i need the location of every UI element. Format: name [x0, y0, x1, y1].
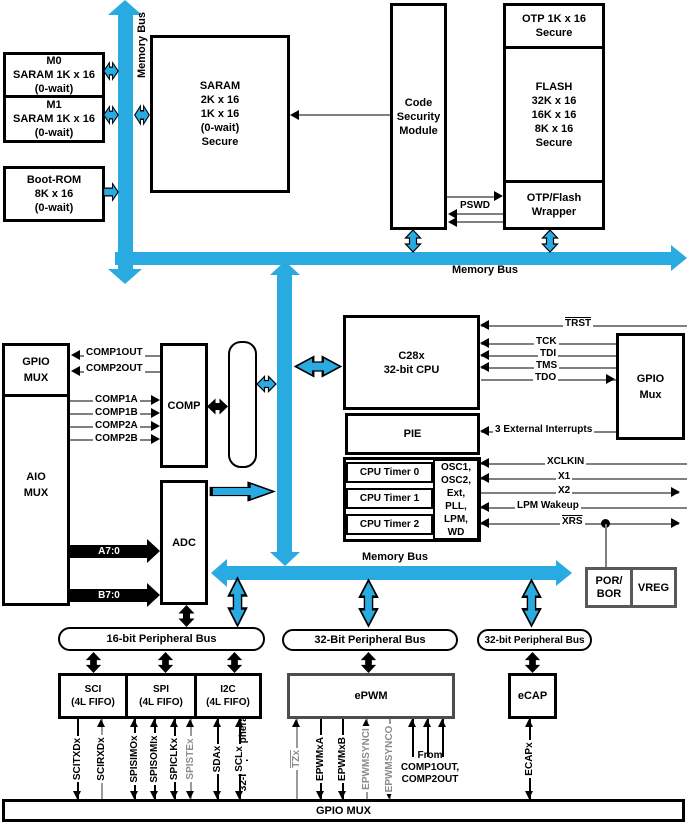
x2-label: X2	[556, 485, 572, 497]
m1-saram-block: M1 SARAM 1K x 16 (0-wait)	[3, 95, 105, 143]
x2-line	[481, 492, 679, 494]
pswd-return-line	[451, 221, 503, 223]
memory-bus-vertical-label: Memory Bus	[136, 12, 148, 78]
double-arrow	[541, 229, 559, 253]
comp-block: COMP	[160, 343, 208, 468]
peripheral-bus-32-epwm: 32-Bit Peripheral Bus	[282, 629, 458, 651]
arrowhead	[606, 374, 615, 384]
memory-bus-vertical	[118, 14, 133, 270]
trst-label: TRST	[563, 318, 593, 330]
arrowhead	[671, 487, 680, 497]
ecapx-label: ECAPx	[524, 721, 536, 797]
saram-block: SARAM 2K x 16 1K x 16 (0-wait) Secure	[150, 35, 290, 193]
bus-connector-arrow	[521, 578, 542, 628]
xrs-label: XRS	[560, 516, 585, 528]
csm-saram-line	[292, 114, 390, 116]
arrowhead	[408, 719, 416, 727]
scitxdx-label: SCITXDx	[72, 721, 84, 797]
arrowhead	[480, 426, 489, 436]
sci-block: SCI (4L FIFO)	[58, 673, 128, 719]
memory-bus-top	[115, 252, 671, 265]
peripheral-bus-32-vertical: 32-bit peripheral bus	[228, 341, 257, 468]
arrowhead	[151, 408, 160, 418]
xclkin-label: XCLKIN	[545, 456, 586, 468]
tdo-label: TDO	[533, 372, 558, 384]
clocks-block: OSC1, OSC2, Ext, PLL, LPM, WD	[433, 459, 479, 540]
arrowhead	[671, 518, 680, 528]
double-arrow	[256, 375, 277, 393]
pie-block: PIE	[345, 413, 480, 455]
arrowhead	[448, 217, 457, 227]
arrowhead	[480, 502, 489, 512]
arrowhead	[151, 395, 160, 405]
memory-bus-central-vertical	[277, 275, 292, 553]
arrowhead	[480, 350, 489, 360]
gpio-mux-right-block: GPIO Mux	[616, 333, 685, 440]
cpu-timer2-block: CPU Timer 2	[346, 514, 433, 535]
double-arrow	[157, 652, 174, 673]
cpu-timer1-block: CPU Timer 1	[346, 488, 433, 509]
double-arrow	[360, 652, 377, 673]
epwm-block: ePWM	[287, 673, 455, 719]
spiclkx-label: SPICLKx	[169, 721, 181, 797]
arrowhead	[480, 458, 489, 468]
comp2out-label: COMP2OUT	[84, 363, 145, 375]
comp2b-label: COMP2B	[93, 433, 140, 445]
spistex-label: SPISTEx	[185, 721, 197, 797]
epwmsynci-label: EPWMSYNCI	[361, 721, 373, 797]
peripheral-bus-32-ecap: 32-bit Peripheral Bus	[477, 629, 592, 651]
arrowhead	[108, 269, 142, 284]
arrowhead	[556, 560, 572, 586]
boot-rom-block: Boot-ROM 8K x 16 (0-wait)	[3, 166, 105, 222]
arrowhead	[480, 362, 489, 372]
block-diagram: Memory Bus Memory Bus Memory Bus M0 SARA…	[0, 0, 687, 824]
arrowhead	[147, 539, 160, 563]
gpio-aio-mux-block: GPIO MUX AIO MUX	[2, 343, 70, 606]
sclx-label: SCLx	[234, 721, 246, 797]
arrowhead	[290, 110, 299, 120]
double-arrow	[103, 61, 119, 81]
x1-label: X1	[556, 471, 572, 483]
cpu-block: C28x 32-bit CPU	[343, 315, 480, 410]
lpm-wakeup-line	[481, 507, 687, 509]
double-arrow	[134, 104, 150, 126]
flash-block: FLASH 32K x 16 16K x 16 8K x 16 Secure	[503, 46, 605, 183]
comp1b-label: COMP1B	[93, 407, 140, 419]
arrowhead	[438, 719, 446, 727]
comp1a-label: COMP1A	[93, 394, 140, 406]
code-security-module-block: Code Security Module	[390, 3, 447, 230]
arrowhead	[270, 261, 300, 275]
arrowhead	[480, 320, 489, 330]
comp1out-label: COMP1OUT	[84, 347, 145, 359]
arrowhead	[480, 338, 489, 348]
tzx-label: TZx	[291, 721, 303, 797]
otp-block: OTP 1K x 16 Secure	[503, 3, 605, 49]
tms-label: TMS	[534, 360, 559, 372]
arrowhead	[494, 191, 503, 201]
x1-line	[481, 478, 687, 480]
arrowhead	[270, 552, 300, 566]
arrowhead	[71, 366, 80, 376]
tck-label: TCK	[534, 336, 559, 348]
arrowhead	[480, 473, 489, 483]
arrowhead	[151, 434, 160, 444]
arrowhead	[423, 719, 431, 727]
double-arrow	[226, 652, 243, 673]
vreg-block: VREG	[630, 567, 677, 608]
external-interrupts-label: 3 External Interrupts	[493, 424, 594, 436]
double-arrow	[103, 105, 119, 125]
double-arrow	[293, 355, 343, 378]
arrowhead	[480, 518, 489, 528]
double-arrow	[404, 229, 422, 253]
adc-b-bus: B7:0	[70, 589, 148, 602]
tdi-label: TDI	[538, 348, 558, 360]
single-arrow-right	[103, 182, 119, 202]
bus-connector-arrow	[227, 576, 248, 628]
arrowhead	[671, 245, 687, 271]
adc-a-bus: A7:0	[70, 545, 148, 558]
memory-bus-mid	[227, 566, 556, 580]
gpio-mux-bottom-bar: GPIO MUX	[2, 799, 685, 822]
spisimox-label: SPISIMOx	[129, 721, 141, 797]
memory-bus-top-label: Memory Bus	[440, 264, 530, 276]
pswd-line	[447, 196, 497, 198]
ecap-block: eCAP	[508, 673, 557, 719]
peripheral-bus-16: 16-bit Peripheral Bus	[58, 627, 265, 651]
arrowhead	[211, 559, 227, 587]
double-arrow	[207, 398, 228, 415]
arrowhead	[151, 421, 160, 431]
spi-block: SPI (4L FIFO)	[125, 673, 197, 719]
single-arrow-right	[208, 481, 277, 502]
cpu-timer0-block: CPU Timer 0	[346, 462, 433, 483]
m0-saram-block: M0 SARAM 1K x 16 (0-wait)	[3, 52, 105, 98]
from-comp-label: From COMP1OUT, COMP2OUT	[385, 750, 475, 786]
arrowhead	[71, 350, 80, 360]
otp-flash-wrapper-block: OTP/Flash Wrapper	[503, 180, 605, 230]
lpm-wakeup-label: LPM Wakeup	[515, 500, 581, 512]
spisomix-label: SPISOMIx	[149, 721, 161, 797]
gpio-mux-left-label: GPIO MUX	[22, 354, 50, 386]
xrs-por-line	[605, 524, 607, 567]
adc-block: ADC	[160, 480, 208, 605]
double-arrow	[524, 652, 541, 673]
divider	[5, 394, 67, 397]
pswd-label: PSWD	[458, 200, 492, 212]
epwmxb-label: EPWMxB	[337, 721, 349, 797]
double-arrow	[178, 605, 195, 627]
i2c-block: I2C (4L FIFO)	[194, 673, 262, 719]
sdax-label: SDAx	[212, 721, 224, 797]
comp2a-label: COMP2A	[93, 420, 140, 432]
bus-connector-arrow	[358, 578, 379, 628]
pswd-return-line	[451, 213, 503, 215]
memory-bus-mid-label: Memory Bus	[345, 551, 445, 563]
scirxdx-label: SCIRXDx	[96, 721, 108, 797]
double-arrow	[85, 652, 102, 673]
por-bor-block: POR/ BOR	[585, 567, 633, 608]
aio-mux-label: AIO MUX	[24, 469, 48, 501]
epwmxa-label: EPWMxA	[315, 721, 327, 797]
arrowhead	[147, 583, 160, 607]
